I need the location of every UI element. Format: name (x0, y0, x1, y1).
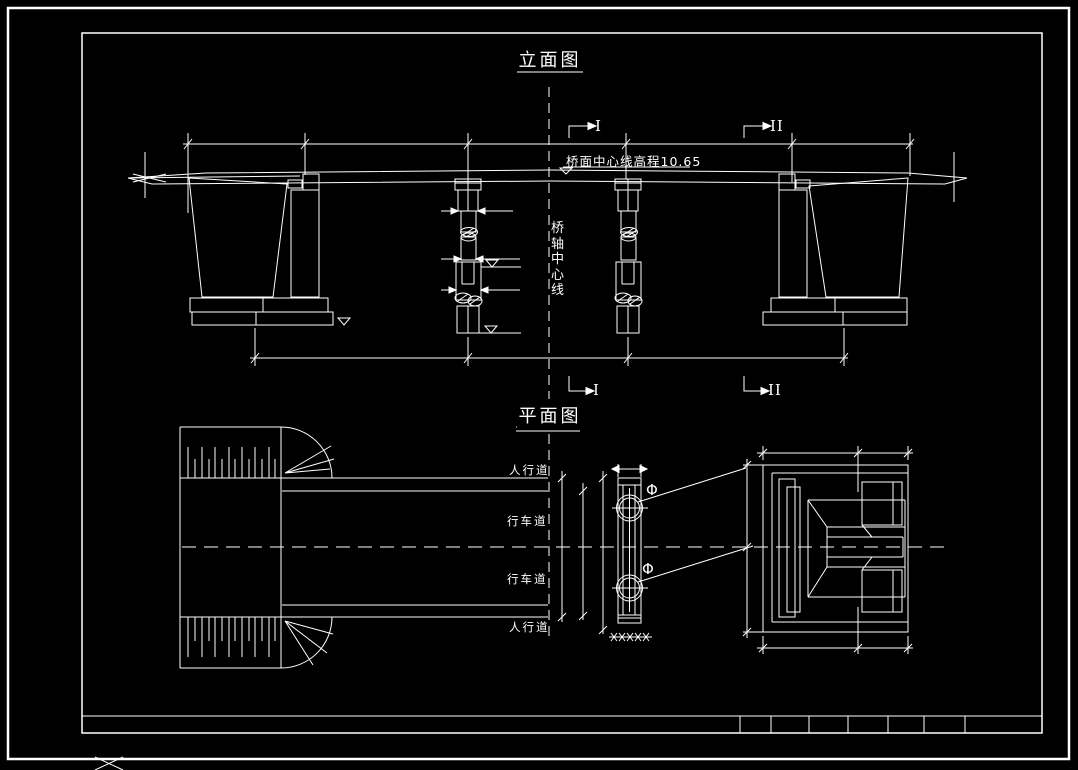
sheet-borders (8, 8, 1069, 770)
arrowheads (449, 287, 488, 293)
abutment-body (189, 178, 287, 297)
wing-wall-arc-bottom (281, 617, 332, 668)
section-label-2-top: II (770, 117, 784, 135)
abutment-column (779, 190, 807, 297)
level-triangle (485, 326, 497, 333)
cap-block-bottom (862, 570, 902, 612)
inner-border (82, 33, 1042, 733)
sidewalk-label-bottom: 人行道 (509, 619, 550, 635)
lane-label-bottom: 行车道 (507, 571, 548, 587)
drawing-canvas (0, 0, 1078, 770)
elevation-title: 立面图 (517, 46, 583, 72)
left-dimension (743, 459, 763, 638)
footing-lower (763, 312, 907, 325)
footing-lower (192, 312, 333, 325)
pile-dimension-marks (609, 633, 652, 641)
pier-cap-lines (455, 179, 481, 190)
cad-drawing-sheet: 立面图 桥面中心线高程10.65 桥轴中心线 I II I II 平面图 人行道… (0, 0, 1078, 770)
middle-pier-right (615, 179, 642, 333)
footing-upper (771, 298, 907, 312)
deck-elevation-note: 桥面中心线高程10.65 (566, 151, 701, 170)
sidewalk-label-top: 人行道 (509, 462, 550, 478)
arrowheads (454, 256, 483, 262)
back-wall-bar (787, 487, 800, 612)
section-label-1-top: I (595, 117, 602, 135)
bearing-block (303, 174, 319, 190)
plan-pier (609, 464, 753, 641)
pier-column (461, 237, 476, 260)
wing-radial-lines (285, 621, 333, 665)
abutment-column (291, 190, 319, 297)
bearing-block (779, 174, 795, 190)
top-dimension (757, 446, 913, 492)
abutment-body (809, 178, 908, 297)
pile-collar-socket (462, 262, 474, 284)
bridge-axis-label: 桥轴中心线 (550, 221, 565, 299)
bridge-deck (128, 152, 967, 202)
pile-diameter-symbol-top: Φ (646, 481, 658, 499)
level-triangle (486, 260, 498, 267)
section-marker-line (569, 126, 589, 138)
plan-dimensions (558, 471, 607, 634)
pile-diameter-symbol-bottom: Φ (642, 560, 654, 578)
cap-outline (808, 500, 905, 597)
cap-block-top (862, 482, 902, 525)
slope-hatching-top (188, 447, 275, 478)
lane-label-top: 行车道 (507, 513, 548, 529)
bearing-shim (796, 180, 810, 188)
section-marker-line (569, 376, 587, 391)
section-label-2-bottom: II (768, 381, 782, 399)
bottom-dimension (757, 607, 913, 654)
left-abutment (189, 174, 350, 325)
bearing-shim (288, 180, 302, 188)
ground-level-triangle (338, 318, 350, 325)
abutment-outer (763, 465, 908, 632)
footing-upper (190, 298, 328, 312)
plan-view (180, 427, 945, 668)
right-abutment (763, 174, 908, 325)
middle-pier (455, 179, 482, 333)
title-block-cells (740, 716, 965, 733)
plan-title: 平面图 (517, 402, 583, 428)
slope-hatching-bottom (188, 617, 275, 657)
wing-radial-lines (285, 446, 334, 473)
plan-right-abutment (743, 446, 913, 654)
dimension-lines (562, 471, 603, 634)
section-marker-line (744, 376, 762, 391)
section-label-1-bottom: I (593, 381, 600, 399)
section-marker-line (744, 126, 764, 138)
